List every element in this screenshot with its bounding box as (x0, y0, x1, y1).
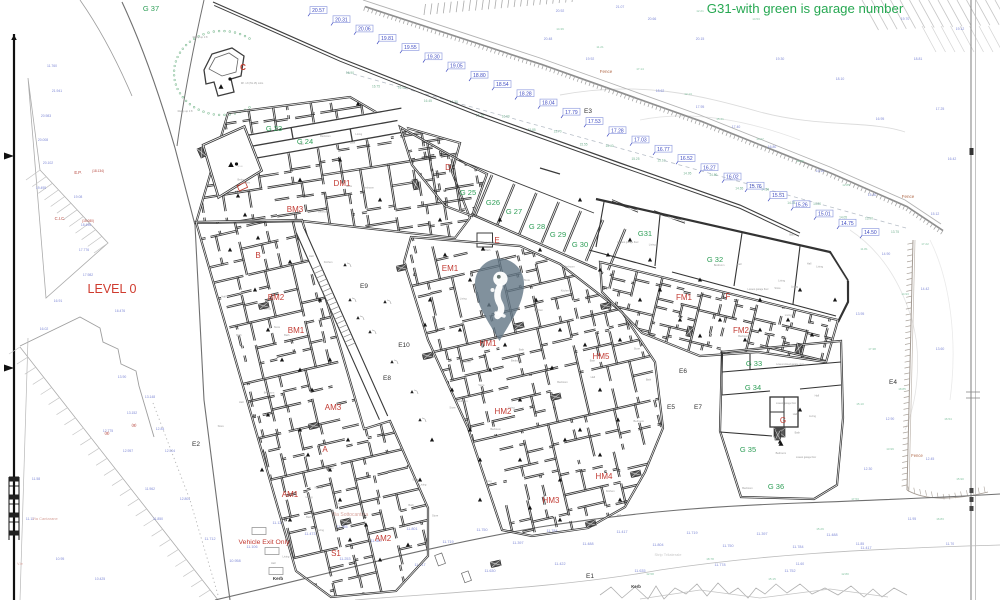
svg-text:11.488: 11.488 (826, 533, 837, 537)
svg-text:Bedroom: Bedroom (714, 263, 725, 267)
svg-text:Kitchen: Kitchen (315, 485, 324, 489)
svg-text:Living: Living (649, 243, 656, 247)
svg-text:13.90: 13.90 (865, 217, 873, 221)
svg-text:E4: E4 (889, 379, 897, 386)
svg-text:V.le: V.le (17, 562, 23, 566)
svg-text:Bath: Bath (284, 333, 290, 337)
svg-text:(g): (g) (132, 422, 138, 427)
svg-text:11.750: 11.750 (722, 544, 733, 548)
svg-text:17.79: 17.79 (565, 110, 578, 116)
svg-text:Bath: Bath (408, 503, 414, 507)
svg-text:Hall: Hall (221, 295, 226, 299)
svg-text:Store: Store (300, 258, 307, 262)
svg-text:Hall: Hall (793, 412, 798, 416)
svg-text:Living: Living (508, 406, 515, 410)
svg-text:12.45: 12.45 (926, 457, 935, 461)
svg-text:Via Cantarane: Via Cantarane (32, 516, 58, 521)
svg-text:15.10: 15.10 (856, 402, 864, 406)
svg-text:11.397: 11.397 (756, 532, 767, 536)
svg-text:11.417: 11.417 (860, 546, 871, 550)
svg-text:14.50: 14.50 (761, 188, 769, 192)
svg-text:D: D (445, 163, 451, 172)
svg-text:Bedroom: Bedroom (776, 451, 787, 455)
svg-text:G 28: G 28 (529, 222, 545, 231)
svg-text:Bath: Bath (789, 233, 795, 237)
svg-text:Bedroom: Bedroom (318, 210, 329, 214)
svg-text:G 36: G 36 (768, 482, 784, 491)
svg-text:Hall: Hall (617, 513, 622, 517)
svg-text:G 30: G 30 (572, 240, 588, 249)
svg-text:18.81: 18.81 (914, 57, 923, 61)
svg-text:14.39: 14.39 (556, 27, 564, 31)
svg-text:15.12: 15.12 (931, 212, 940, 216)
svg-text:11.778: 11.778 (714, 563, 725, 567)
svg-text:13.152: 13.152 (127, 411, 137, 415)
svg-text:14.65: 14.65 (735, 186, 743, 190)
svg-text:Fence: Fence (911, 453, 923, 458)
svg-text:16.95: 16.95 (876, 117, 885, 121)
svg-text:18.04: 18.04 (542, 101, 555, 107)
svg-text:13.95: 13.95 (856, 312, 865, 316)
svg-text:Kerb: Kerb (273, 576, 284, 581)
svg-text:18.54: 18.54 (496, 82, 509, 88)
svg-text:20.102: 20.102 (43, 161, 53, 165)
svg-text:Store: Store (274, 325, 281, 329)
svg-text:16.77: 16.77 (657, 147, 670, 153)
svg-text:Bedroom: Bedroom (634, 419, 645, 423)
svg-text:17.28: 17.28 (611, 128, 624, 134)
svg-text:16.75: 16.75 (372, 84, 380, 88)
svg-text:Hall: Hall (309, 254, 314, 258)
svg-text:Living: Living (460, 296, 467, 300)
svg-text:Bedroom: Bedroom (557, 380, 568, 384)
svg-text:G31-with green is garage numbe: G31-with green is garage number (707, 1, 904, 16)
svg-text:Bath: Bath (263, 376, 269, 380)
svg-text:Store: Store (346, 184, 353, 188)
svg-text:FM2: FM2 (733, 326, 750, 335)
svg-text:15.10: 15.10 (657, 158, 665, 162)
svg-text:15.25: 15.25 (632, 157, 640, 161)
svg-text:20.15: 20.15 (696, 37, 705, 41)
svg-text:13.90: 13.90 (118, 375, 127, 379)
svg-text:Store: Store (432, 513, 439, 517)
svg-text:17.14: 17.14 (636, 67, 644, 71)
svg-text:E6: E6 (679, 368, 687, 375)
svg-text:Lowest garage floor: Lowest garage floor (796, 456, 816, 459)
svg-text:E8: E8 (383, 375, 391, 382)
svg-text:S1: S1 (331, 549, 341, 558)
svg-text:19.495: 19.495 (36, 186, 46, 190)
svg-text:14.53: 14.53 (752, 17, 760, 21)
svg-text:Living: Living (306, 495, 313, 499)
svg-text:A: A (322, 445, 328, 454)
svg-text:18.10: 18.10 (836, 77, 845, 81)
svg-text:Bedroom: Bedroom (363, 185, 374, 189)
svg-text:Living: Living (778, 278, 785, 282)
svg-text:13.75: 13.75 (891, 230, 899, 234)
svg-text:15.51: 15.51 (772, 193, 785, 199)
svg-text:19.81: 19.81 (381, 36, 394, 42)
svg-text:E7: E7 (694, 404, 702, 411)
svg-text:Living: Living (355, 132, 362, 136)
svg-text:16.80: 16.80 (768, 145, 777, 149)
svg-text:Bedroom: Bedroom (742, 486, 753, 490)
svg-text:16.90: 16.90 (346, 71, 354, 75)
svg-text:16.10: 16.10 (816, 169, 825, 173)
svg-text:11.635: 11.635 (634, 569, 645, 573)
svg-text:G 32: G 32 (707, 255, 723, 264)
svg-text:Fence: Fence (600, 69, 613, 74)
svg-text:HM4: HM4 (596, 472, 613, 481)
svg-text:19.30: 19.30 (427, 55, 440, 61)
svg-text:Lowest garage floor: Lowest garage floor (748, 288, 769, 291)
svg-text:G26: G26 (486, 198, 500, 207)
svg-text:Living: Living (791, 284, 798, 288)
svg-text:Rif. n.8 (Tot.15) Lotto: Rif. n.8 (Tot.15) Lotto (241, 82, 264, 85)
svg-text:20.66: 20.66 (648, 17, 657, 21)
svg-text:Kitchen: Kitchen (606, 489, 615, 493)
svg-text:E.P.: E.P. (74, 170, 81, 175)
svg-text:14.75: 14.75 (841, 221, 854, 227)
svg-text:19.08: 19.08 (74, 195, 83, 199)
svg-text:14.05: 14.05 (839, 215, 847, 219)
svg-text:(g): (g) (105, 430, 111, 435)
svg-text:Bath: Bath (334, 502, 340, 506)
svg-text:LEVEL 0: LEVEL 0 (88, 282, 137, 296)
svg-text:E9: E9 (360, 283, 368, 290)
svg-text:20.48: 20.48 (544, 37, 553, 41)
svg-text:16.02: 16.02 (726, 175, 739, 181)
svg-text:AM1: AM1 (282, 490, 299, 499)
svg-text:17.38: 17.38 (868, 347, 876, 351)
svg-text:11.804: 11.804 (652, 543, 663, 547)
svg-text:G 34: G 34 (745, 383, 761, 392)
svg-text:17.95: 17.95 (696, 105, 705, 109)
svg-text:13.99: 13.99 (886, 447, 894, 451)
svg-text:11.417: 11.417 (616, 530, 627, 534)
svg-text:14.20: 14.20 (813, 202, 821, 206)
svg-text:14.90: 14.90 (882, 252, 891, 256)
svg-text:Bedroom: Bedroom (738, 334, 749, 338)
svg-text:9.1.6: 9.1.6 (238, 166, 244, 168)
svg-text:20.57: 20.57 (312, 8, 325, 14)
svg-text:18.85: 18.85 (898, 387, 906, 391)
svg-text:15.76: 15.76 (749, 184, 762, 190)
svg-text:17.776: 17.776 (79, 248, 89, 252)
svg-text:Bedroom: Bedroom (264, 390, 275, 394)
svg-text:20.31: 20.31 (335, 17, 348, 23)
svg-text:Vehicle Exit Only: Vehicle Exit Only (239, 539, 291, 546)
svg-text:18.80: 18.80 (473, 73, 486, 79)
svg-text:14.93: 14.93 (901, 292, 909, 296)
svg-text:12.21: 12.21 (696, 9, 704, 13)
svg-text:Lowest garage floor: Lowest garage floor (776, 402, 796, 405)
svg-text:Living: Living (816, 264, 823, 268)
svg-text:16.00: 16.00 (502, 115, 510, 119)
svg-text:19.92: 19.92 (586, 57, 595, 61)
svg-text:14.50: 14.50 (864, 230, 877, 236)
svg-text:15.15: 15.15 (768, 577, 776, 581)
svg-text:17.22: 17.22 (921, 242, 929, 246)
svg-text:11.760: 11.760 (47, 64, 57, 68)
svg-text:17.25: 17.25 (936, 107, 945, 111)
svg-text:G 37: G 37 (143, 4, 159, 13)
svg-text:Lowest closed garage door: Lowest closed garage door (776, 363, 804, 366)
svg-text:12.58: 12.58 (646, 572, 654, 576)
svg-text:Bath: Bath (590, 358, 596, 362)
svg-text:Store: Store (524, 278, 531, 282)
svg-text:Hall: Hall (239, 400, 244, 404)
svg-text:16.476: 16.476 (115, 309, 125, 313)
svg-text:11.719: 11.719 (442, 540, 453, 544)
svg-text:11.752: 11.752 (784, 569, 795, 573)
svg-text:Bath: Bath (358, 575, 364, 579)
svg-text:Living: Living (785, 313, 792, 317)
svg-text:11.630: 11.630 (484, 569, 495, 573)
svg-text:Hall: Hall (807, 262, 812, 266)
svg-text:13.148: 13.148 (145, 395, 155, 399)
svg-text:19.70: 19.70 (901, 17, 910, 21)
svg-text:11.253: 11.253 (339, 557, 350, 561)
svg-text:G 33: G 33 (746, 359, 762, 368)
svg-text:AM3: AM3 (325, 403, 342, 412)
svg-text:11.397: 11.397 (512, 541, 523, 545)
svg-text:17.982: 17.982 (83, 273, 93, 277)
svg-text:18.28: 18.28 (519, 92, 532, 98)
svg-text:EM1: EM1 (442, 264, 459, 273)
svg-text:15.30: 15.30 (868, 193, 877, 197)
svg-text:12.957: 12.957 (123, 449, 133, 453)
svg-text:Kitchen: Kitchen (561, 289, 570, 293)
svg-text:15.26: 15.26 (795, 202, 808, 208)
svg-text:Bath: Bath (350, 140, 356, 144)
svg-text:12.30: 12.30 (864, 467, 873, 471)
svg-text:14.27: 14.27 (756, 137, 764, 141)
svg-text:14.42: 14.42 (921, 287, 930, 291)
svg-text:Ramp up 1:8: Ramp up 1:8 (178, 109, 193, 113)
svg-text:Living: Living (743, 297, 750, 301)
svg-text:Bath: Bath (236, 333, 242, 337)
svg-text:20.983: 20.983 (41, 114, 51, 118)
svg-text:11.70: 11.70 (946, 542, 954, 546)
svg-text:16.45: 16.45 (424, 99, 432, 103)
svg-text:11.81: 11.81 (860, 247, 868, 251)
svg-text:G 29: G 29 (550, 230, 566, 239)
svg-text:HM5: HM5 (593, 352, 610, 361)
svg-text:FM1: FM1 (676, 293, 693, 302)
svg-text:16.27: 16.27 (703, 165, 716, 171)
svg-text:Living: Living (283, 554, 290, 558)
svg-text:BM3: BM3 (287, 205, 304, 214)
svg-text:21.07: 21.07 (616, 5, 625, 9)
svg-text:Kitchen: Kitchen (445, 276, 454, 280)
svg-text:10.425: 10.425 (95, 577, 105, 581)
svg-text:11.21: 11.21 (596, 45, 604, 49)
svg-text:G: G (780, 416, 786, 425)
svg-text:G31: G31 (638, 229, 652, 238)
svg-text:11.750: 11.750 (476, 528, 487, 532)
svg-text:Living: Living (317, 528, 324, 532)
svg-text:11.473: 11.473 (304, 532, 315, 536)
svg-text:Store: Store (412, 477, 419, 481)
svg-text:E10: E10 (398, 342, 410, 349)
svg-text:15.29: 15.29 (816, 527, 824, 531)
svg-text:Bath: Bath (519, 348, 525, 352)
svg-text:11.58: 11.58 (32, 477, 40, 481)
svg-text:11.60: 11.60 (796, 562, 804, 566)
svg-text:20.008: 20.008 (38, 138, 48, 142)
svg-text:20.06: 20.06 (358, 27, 371, 33)
svg-text:Store: Store (634, 347, 641, 351)
svg-text:BM2: BM2 (268, 293, 285, 302)
svg-text:16.42: 16.42 (948, 157, 957, 161)
svg-text:12.504: 12.504 (165, 449, 175, 453)
svg-text:Hall: Hall (591, 375, 596, 379)
svg-text:Bedroom: Bedroom (490, 427, 501, 431)
svg-text:12.80: 12.80 (841, 572, 849, 576)
svg-text:(18.134): (18.134) (92, 169, 104, 173)
svg-text:Bedroom: Bedroom (457, 399, 468, 403)
svg-text:Strip Trilaterale: Strip Trilaterale (655, 552, 683, 557)
svg-text:Kitchen: Kitchen (462, 360, 471, 364)
svg-text:C: C (240, 63, 246, 72)
svg-text:20.92: 20.92 (556, 9, 565, 13)
svg-text:15.40: 15.40 (606, 144, 614, 148)
svg-text:Bath: Bath (306, 515, 312, 519)
svg-text:Kitchen: Kitchen (534, 308, 543, 312)
svg-text:11.784: 11.784 (792, 545, 803, 549)
svg-text:10.95: 10.95 (56, 557, 65, 561)
svg-text:18.62: 18.62 (656, 89, 665, 93)
svg-text:16.52: 16.52 (680, 156, 693, 162)
svg-text:13.60: 13.60 (936, 347, 945, 351)
svg-text:15.70: 15.70 (554, 129, 562, 133)
svg-text:G 35: G 35 (740, 445, 756, 454)
svg-text:17.53: 17.53 (588, 119, 601, 125)
svg-text:E5: E5 (667, 404, 675, 411)
svg-text:11.850: 11.850 (153, 517, 163, 521)
svg-text:E: E (494, 236, 499, 245)
svg-text:11.95: 11.95 (908, 517, 916, 521)
svg-text:Store: Store (774, 286, 781, 290)
svg-text:Bath: Bath (646, 378, 652, 382)
svg-text:E2: E2 (192, 441, 200, 448)
svg-text:10.958: 10.958 (229, 559, 240, 563)
svg-text:21.941: 21.941 (52, 89, 62, 93)
svg-text:19.05: 19.05 (450, 64, 463, 70)
svg-text:15.55: 15.55 (580, 143, 588, 147)
svg-text:15.90: 15.90 (956, 477, 964, 481)
svg-text:16.02: 16.02 (40, 327, 49, 331)
svg-text:E3: E3 (584, 108, 592, 115)
svg-text:12.85: 12.85 (842, 183, 850, 187)
svg-text:Bedroom: Bedroom (564, 264, 575, 268)
svg-text:12.96: 12.96 (796, 159, 804, 163)
svg-text:B: B (255, 251, 260, 260)
svg-text:Living: Living (485, 479, 492, 483)
svg-text:19.12: 19.12 (956, 27, 965, 31)
svg-text:11.719: 11.719 (686, 531, 697, 535)
svg-text:Kerb: Kerb (631, 584, 641, 589)
svg-text:G 23: G 23 (266, 124, 282, 133)
svg-text:Store: Store (218, 424, 225, 428)
svg-text:E1: E1 (586, 573, 594, 580)
svg-text:12.13: 12.13 (684, 92, 692, 96)
svg-text:17.03: 17.03 (634, 138, 647, 144)
svg-text:Bath: Bath (485, 248, 491, 252)
svg-text:17.40: 17.40 (732, 125, 741, 129)
svg-text:11.801: 11.801 (406, 527, 417, 531)
svg-text:11.488: 11.488 (582, 542, 593, 546)
svg-text:14.95: 14.95 (683, 172, 691, 176)
svg-text:Ramp up 1:8: Ramp up 1:8 (193, 35, 208, 39)
svg-text:Living: Living (420, 482, 427, 486)
svg-text:11.422: 11.422 (554, 562, 565, 566)
svg-text:15.41: 15.41 (716, 117, 724, 121)
svg-text:16.60: 16.60 (398, 86, 406, 90)
svg-text:HM1: HM1 (480, 339, 497, 348)
svg-text:(15.080): (15.080) (82, 219, 94, 223)
svg-text:C.I.C.: C.I.C. (55, 216, 66, 221)
svg-text:19.55: 19.55 (404, 45, 417, 51)
svg-text:Bedroom: Bedroom (238, 178, 249, 182)
svg-text:Kitchen: Kitchen (324, 260, 333, 264)
svg-text:AM2: AM2 (375, 534, 392, 543)
svg-text:Store: Store (449, 406, 456, 410)
svg-text:11.712: 11.712 (204, 537, 215, 541)
svg-text:Hall: Hall (271, 561, 276, 565)
svg-text:Hall: Hall (815, 394, 820, 398)
svg-text:18.496: 18.496 (81, 223, 91, 227)
svg-text:16.54: 16.54 (944, 417, 952, 421)
svg-text:12.90: 12.90 (886, 417, 895, 421)
svg-text:16.83: 16.83 (936, 517, 944, 521)
svg-text:HM3: HM3 (543, 496, 560, 505)
svg-text:16.91: 16.91 (54, 299, 63, 303)
svg-text:Bath: Bath (795, 430, 801, 434)
svg-text:18.78: 18.78 (706, 557, 714, 561)
svg-text:Fence: Fence (902, 194, 915, 199)
svg-text:Bedroom: Bedroom (320, 134, 331, 138)
svg-text:Bedroom: Bedroom (511, 359, 522, 363)
svg-text:G 27: G 27 (506, 207, 522, 216)
svg-text:14.80: 14.80 (709, 173, 717, 177)
svg-text:11.962: 11.962 (145, 487, 155, 491)
svg-text:BM1: BM1 (288, 326, 305, 335)
svg-text:19.30: 19.30 (776, 57, 785, 61)
svg-text:Living: Living (809, 414, 816, 418)
svg-text:Store: Store (478, 383, 485, 387)
svg-text:Hall: Hall (737, 262, 742, 266)
svg-text:12.84: 12.84 (156, 427, 165, 431)
svg-text:F: F (726, 292, 731, 301)
svg-text:G 25: G 25 (460, 188, 476, 197)
svg-text:Hall: Hall (299, 142, 304, 146)
svg-text:15.01: 15.01 (818, 212, 831, 218)
